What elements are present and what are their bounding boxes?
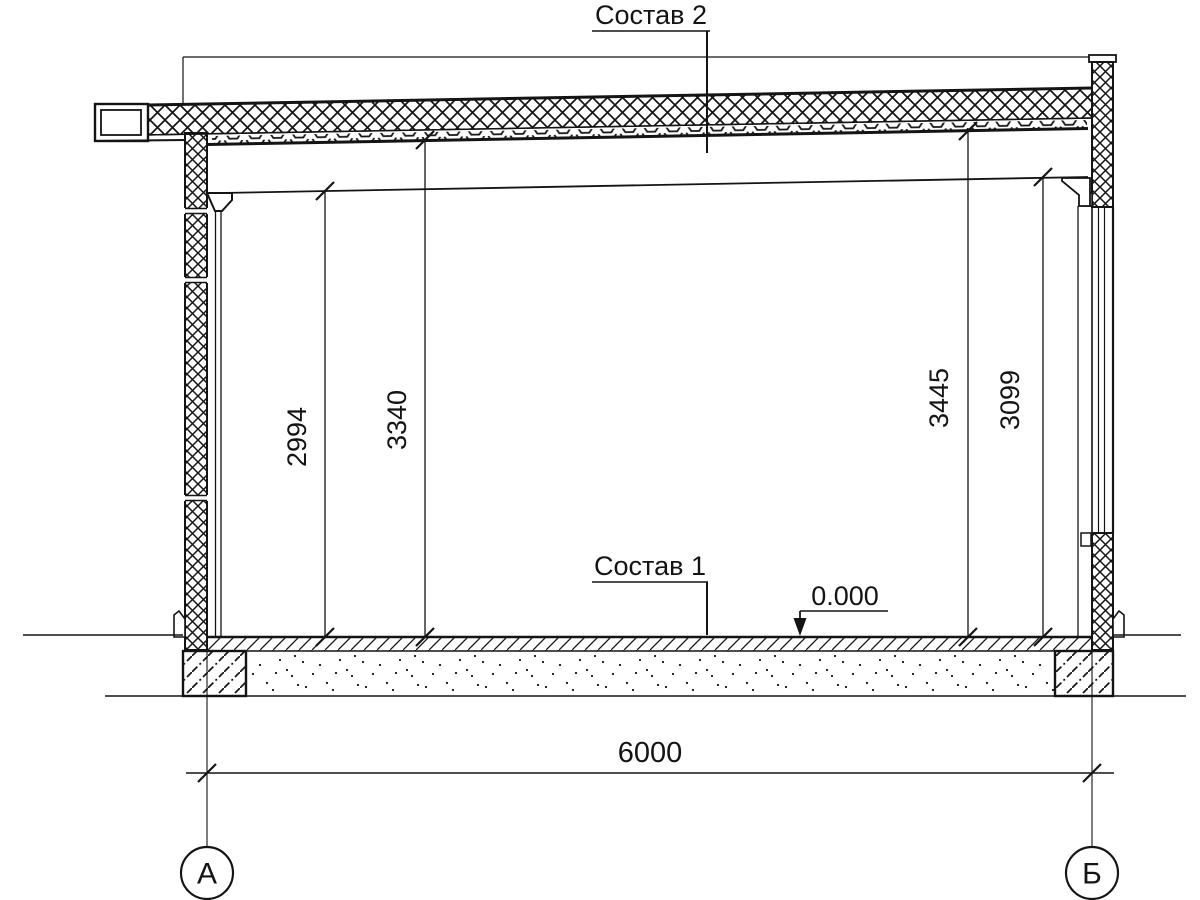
left-wall: [174, 133, 232, 650]
dimension-exterior-right: 3445: [924, 122, 977, 646]
dimension-value: 3445: [924, 368, 954, 428]
window-strip: [1081, 193, 1113, 546]
dimension-value: 3099: [995, 370, 1025, 430]
roof-beam-line: [220, 177, 1088, 193]
level-arrow-icon: [794, 618, 807, 636]
span-dimension: 6000: [186, 737, 1114, 782]
base-flashing-right: [1113, 611, 1124, 637]
parapet-cap: [1089, 55, 1116, 62]
span-value: 6000: [618, 737, 683, 769]
dimension-interior-right: 3099: [995, 168, 1052, 646]
foundation-block-left: [183, 651, 246, 696]
axis-label-b: Б: [1082, 858, 1102, 891]
dimension-value: 2994: [282, 407, 312, 467]
dimension-value: 3340: [382, 390, 412, 450]
drawing-sheet: Состав 2 Состав 1 0.000 2994 3340 3445: [0, 0, 1200, 900]
section-drawing: Состав 2 Состав 1 0.000 2994 3340 3445: [0, 0, 1200, 900]
parapet: [1092, 62, 1113, 207]
composition-1-callout: Состав 1: [592, 551, 708, 635]
right-wall: [1062, 55, 1124, 650]
floor-slab: [207, 637, 1092, 651]
foundation-block-right: [1055, 651, 1113, 696]
base-flashing-left: [174, 611, 185, 637]
beam-bracket-right: [1062, 178, 1090, 206]
column-capital-left: [207, 193, 232, 211]
composition-2-label: Состав 2: [595, 0, 707, 30]
dimension-exterior-left: 3340: [382, 131, 434, 646]
level-mark-value: 0.000: [811, 581, 879, 611]
concrete-bed: [246, 652, 1055, 695]
axis-label-a: А: [197, 858, 217, 891]
level-mark: 0.000: [794, 581, 889, 636]
roof-assembly: [95, 88, 1092, 193]
composition-1-label: Состав 1: [594, 551, 706, 581]
dimension-interior-left: 2994: [282, 182, 334, 646]
